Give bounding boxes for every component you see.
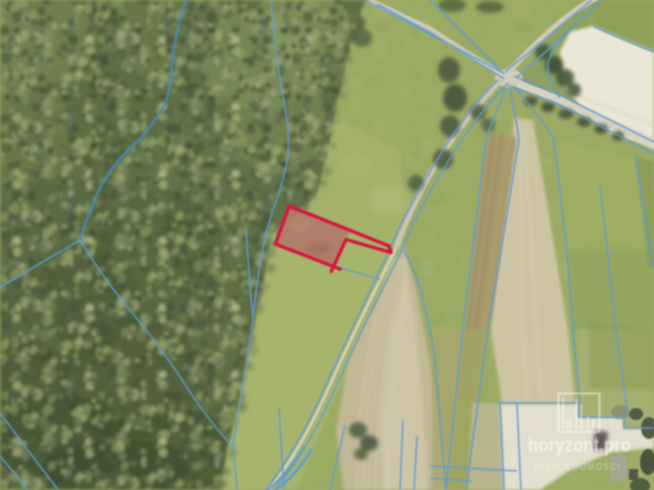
svg-text:horyzont.pro: horyzont.pro (528, 435, 631, 457)
svg-text:NIERUCHOMOŚCI: NIERUCHOMOŚCI (534, 460, 621, 473)
